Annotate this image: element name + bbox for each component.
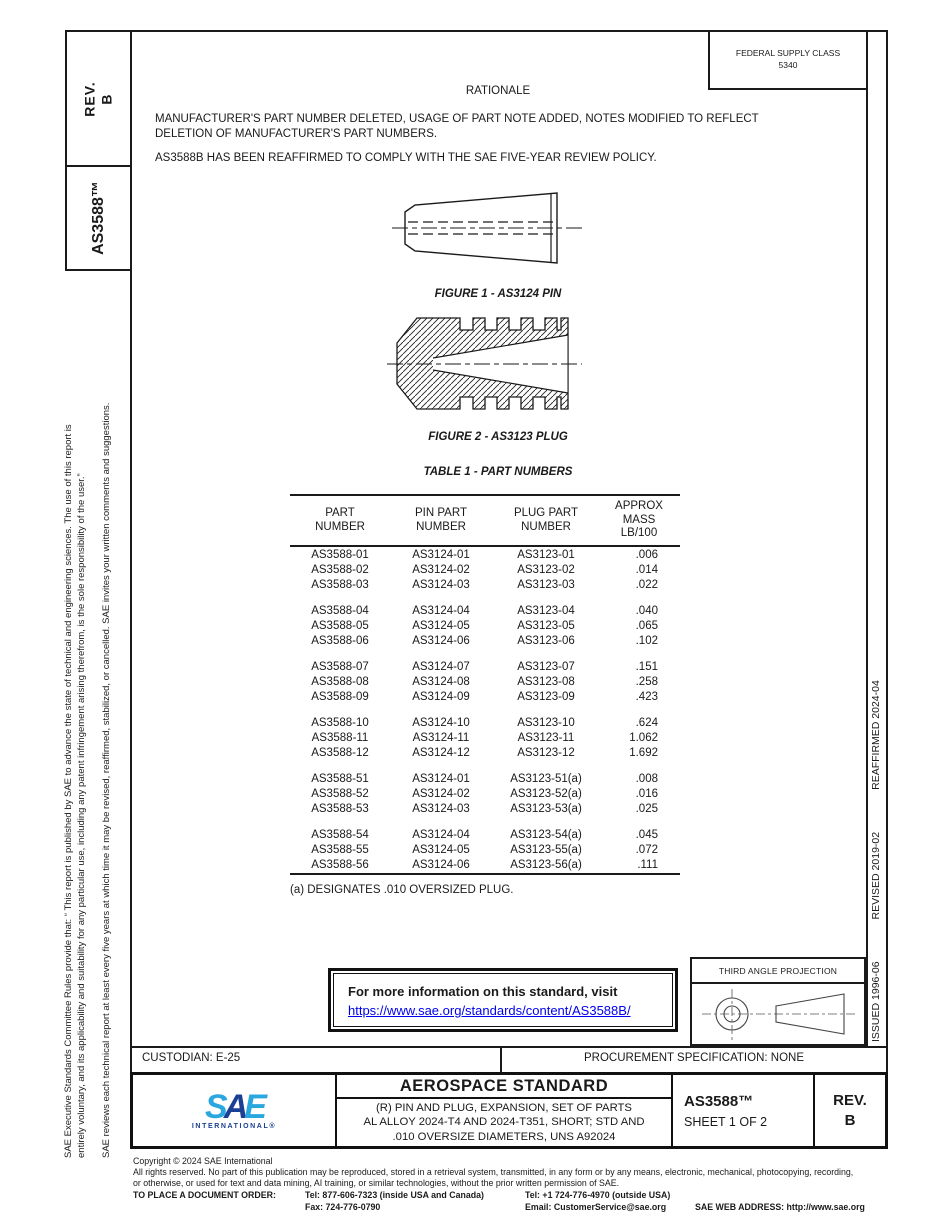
table-cell: .423 [600, 691, 678, 703]
table-cell: AS3588-54 [290, 829, 390, 841]
custodian-row-top-rule [130, 1046, 888, 1048]
column-header: PIN PART NUMBER [390, 507, 492, 534]
table-cell: AS3123-02 [492, 564, 600, 576]
reaffirmed-date: REAFFIRMED 2024-04 [870, 680, 882, 790]
table-group-gap [290, 705, 680, 716]
table-row: AS3588-11AS3124-11AS3123-111.062 [290, 730, 680, 745]
figure-1-caption: FIGURE 1 - AS3124 PIN [130, 288, 866, 300]
revised-date: REVISED 2019-02 [870, 832, 882, 920]
table-row: AS3588-03AS3124-03AS3123-03.022 [290, 577, 680, 592]
table-cell: AS3588-03 [290, 579, 390, 591]
table-group-gap [290, 593, 680, 604]
table-cell: AS3124-03 [390, 579, 492, 591]
sae-logo-e: E [244, 1088, 263, 1126]
table-group-gap [290, 649, 680, 660]
table-cell: AS3588-51 [290, 773, 390, 785]
table-cell: AS3124-12 [390, 747, 492, 759]
sae-logo-subtext: INTERNATIONAL® [192, 1123, 276, 1130]
doc-number-cell: AS3588™ SHEET 1 OF 2 [671, 1075, 813, 1146]
more-info-text: For more information on this standard, v… [348, 982, 672, 1001]
table-cell: AS3588-10 [290, 717, 390, 729]
column-header: APPROX MASS LB/100 [600, 500, 678, 541]
table-body: AS3588-01AS3124-01AS3123-01.006AS3588-02… [290, 547, 680, 873]
document-page: FEDERAL SUPPLY CLASS 5340 REV. B AS3588™… [0, 0, 950, 1230]
sheet-number: SHEET 1 OF 2 [684, 1115, 813, 1129]
order-label: TO PLACE A DOCUMENT ORDER: [133, 1190, 276, 1201]
rationale-paragraph-1: MANUFACTURER'S PART NUMBER DELETED, USAG… [155, 112, 845, 142]
standard-title-lines: (R) PIN AND PLUG, EXPANSION, SET OF PART… [337, 1099, 671, 1146]
table-cell: .022 [600, 579, 678, 591]
rev-value: REV. B [833, 1091, 867, 1131]
table-cell: .111 [600, 859, 678, 871]
table-cell: AS3123-54(a) [492, 829, 600, 841]
fax-number: Fax: 724-776-0790 [305, 1202, 380, 1213]
document-type-heading: AEROSPACE STANDARD [337, 1075, 671, 1099]
table-cell: .258 [600, 676, 678, 688]
table-cell: .008 [600, 773, 678, 785]
table-cell: AS3588-09 [290, 691, 390, 703]
table-group-gap [290, 817, 680, 828]
table-cell: AS3124-10 [390, 717, 492, 729]
table-row: AS3588-55AS3124-05AS3123-55(a).072 [290, 843, 680, 858]
table-cell: AS3123-56(a) [492, 859, 600, 871]
column-header: PART NUMBER [290, 507, 390, 534]
table-cell: .040 [600, 605, 678, 617]
figure-1-pin-drawing [390, 186, 585, 276]
table-cell: AS3123-03 [492, 579, 600, 591]
table-cell: .016 [600, 788, 678, 800]
web-address: SAE WEB ADDRESS: http://www.sae.org [695, 1202, 865, 1213]
table-cell: AS3588-11 [290, 732, 390, 744]
table-cell: AS3123-07 [492, 661, 600, 673]
table-cell: AS3123-05 [492, 620, 600, 632]
table-cell: AS3124-01 [390, 549, 492, 561]
sae-committee-disclaimer: SAE Executive Standards Committee Rules … [62, 268, 88, 1158]
copyright-line: Copyright © 2024 SAE International [133, 1156, 273, 1167]
table-cell: 1.692 [600, 747, 678, 759]
table-row: AS3588-52AS3124-02AS3123-52(a).016 [290, 786, 680, 801]
table-cell: AS3124-05 [390, 620, 492, 632]
federal-supply-class-text: FEDERAL SUPPLY CLASS 5340 [736, 47, 840, 71]
federal-supply-class-box: FEDERAL SUPPLY CLASS 5340 [708, 30, 866, 90]
table-cell: AS3123-52(a) [492, 788, 600, 800]
table-cell: AS3124-06 [390, 859, 492, 871]
table-cell: AS3123-12 [492, 747, 600, 759]
table-cell: AS3124-05 [390, 844, 492, 856]
table-cell: AS3124-04 [390, 829, 492, 841]
table-cell: AS3588-05 [290, 620, 390, 632]
more-info-box-inner: For more information on this standard, v… [333, 973, 673, 1027]
table-cell: AS3123-09 [492, 691, 600, 703]
table-cell: AS3124-04 [390, 605, 492, 617]
table-cell: AS3123-04 [492, 605, 600, 617]
rights-line-1: All rights reserved. No part of this pub… [133, 1167, 938, 1178]
table-cell: .006 [600, 549, 678, 561]
figure-2-caption: FIGURE 2 - AS3123 PLUG [130, 431, 866, 443]
table-cell: AS3124-02 [390, 788, 492, 800]
standard-title-line: AL ALLOY 2024-T4 AND 2024-T351, SHORT; S… [363, 1115, 644, 1130]
table-cell: AS3123-55(a) [492, 844, 600, 856]
table-title: TABLE 1 - PART NUMBERS [130, 466, 866, 478]
table-cell: AS3124-11 [390, 732, 492, 744]
table-cell: AS3124-06 [390, 635, 492, 647]
table-row: AS3588-08AS3124-08AS3123-08.258 [290, 674, 680, 689]
table-cell: 1.062 [600, 732, 678, 744]
order-contact-line-1: TO PLACE A DOCUMENT ORDER: Tel: 877-606-… [133, 1190, 938, 1201]
table-row: AS3588-53AS3124-03AS3123-53(a).025 [290, 802, 680, 817]
table-cell: AS3588-06 [290, 635, 390, 647]
table-cell: .624 [600, 717, 678, 729]
table-cell: AS3123-01 [492, 549, 600, 561]
sae-logo-a: A [224, 1088, 245, 1126]
title-block: SAE INTERNATIONAL® AEROSPACE STANDARD (R… [130, 1072, 888, 1149]
table-cell: AS3588-07 [290, 661, 390, 673]
tel-outside: Tel: +1 724-776-4970 (outside USA) [525, 1190, 670, 1201]
table-row: AS3588-01AS3124-01AS3123-01.006 [290, 547, 680, 562]
table-cell: AS3588-53 [290, 803, 390, 815]
table-cell: .014 [600, 564, 678, 576]
table-cell: .025 [600, 803, 678, 815]
sae-logo-letters: SAE [205, 1092, 263, 1122]
table-row: AS3588-09AS3124-09AS3123-09.423 [290, 690, 680, 705]
table-cell: AS3123-51(a) [492, 773, 600, 785]
table-cell: AS3124-01 [390, 773, 492, 785]
standard-title-cell: AEROSPACE STANDARD (R) PIN AND PLUG, EXP… [335, 1075, 671, 1146]
table-cell: .072 [600, 844, 678, 856]
table-header-row: PART NUMBER PIN PART NUMBER PLUG PART NU… [290, 496, 680, 545]
table-row: AS3588-05AS3124-05AS3123-05.065 [290, 618, 680, 633]
figure-2-plug-drawing [385, 312, 585, 415]
table-cell: AS3588-01 [290, 549, 390, 561]
third-angle-projection-label: THIRD ANGLE PROJECTION [692, 959, 864, 984]
rev-tab-text: REV. B [81, 81, 115, 116]
table-cell: AS3123-06 [492, 635, 600, 647]
rev-tab-box: REV. B [65, 30, 132, 167]
rev-cell: REV. B [813, 1075, 885, 1146]
more-info-box: For more information on this standard, v… [328, 968, 678, 1032]
table-cell: .102 [600, 635, 678, 647]
table-cell: AS3124-03 [390, 803, 492, 815]
table-cell: .045 [600, 829, 678, 841]
standard-title-line: (R) PIN AND PLUG, EXPANSION, SET OF PART… [376, 1101, 632, 1116]
table-row: AS3588-02AS3124-02AS3123-02.014 [290, 562, 680, 577]
issued-date: ISSUED 1996-06 [870, 961, 882, 1042]
table-row: AS3588-54AS3124-04AS3123-54(a).045 [290, 827, 680, 842]
part-numbers-table: PART NUMBER PIN PART NUMBER PLUG PART NU… [290, 494, 680, 875]
table-cell: AS3588-12 [290, 747, 390, 759]
table-cell: AS3588-02 [290, 564, 390, 576]
sae-logo-s: S [205, 1088, 224, 1126]
table-row: AS3588-56AS3124-06AS3123-56(a).111 [290, 858, 680, 873]
table-cell: AS3123-53(a) [492, 803, 600, 815]
email-address: Email: CustomerService@sae.org [525, 1202, 666, 1213]
tel-inside: Tel: 877-606-7323 (inside USA and Canada… [305, 1190, 484, 1201]
doc-number-tab-text: AS3588™ [90, 181, 108, 255]
table-bottom-rule [290, 873, 680, 875]
revision-history-strip: ISSUED 1996-06REVISED 2019-02REAFFIRMED … [870, 572, 882, 1042]
table-cell: AS3124-07 [390, 661, 492, 673]
table-cell: AS3124-08 [390, 676, 492, 688]
rationale-heading: RATIONALE [130, 85, 866, 97]
table-row: AS3588-12AS3124-12AS3123-121.692 [290, 746, 680, 761]
table-cell: .151 [600, 661, 678, 673]
third-angle-projection-box: THIRD ANGLE PROJECTION [690, 957, 866, 1046]
table-cell: AS3124-09 [390, 691, 492, 703]
sae-logo: SAE INTERNATIONAL® [133, 1075, 335, 1146]
doc-number: AS3588™ [684, 1093, 813, 1110]
rationale-paragraph-2: AS3588B HAS BEEN REAFFIRMED TO COMPLY WI… [155, 151, 845, 166]
third-angle-projection-symbol [692, 984, 864, 1044]
sae-review-disclaimer: SAE reviews each technical report at lea… [100, 268, 113, 1158]
standard-title-line: .010 OVERSIZE DIAMETERS, UNS A92024 [393, 1130, 616, 1145]
table-cell: AS3588-52 [290, 788, 390, 800]
rights-line-2: or otherwise, or used for text and data … [133, 1178, 938, 1189]
table-cell: AS3588-56 [290, 859, 390, 871]
table-cell: AS3123-08 [492, 676, 600, 688]
order-contact-line-2: Fax: 724-776-0790 Email: CustomerService… [133, 1202, 938, 1213]
table-cell: .065 [600, 620, 678, 632]
table-row: AS3588-10AS3124-10AS3123-10.624 [290, 715, 680, 730]
column-header: PLUG PART NUMBER [492, 507, 600, 534]
doc-number-tab-box: AS3588™ [65, 165, 132, 271]
table-group-gap [290, 761, 680, 772]
table-row: AS3588-06AS3124-06AS3123-06.102 [290, 633, 680, 648]
procurement-spec-text: PROCUREMENT SPECIFICATION: NONE [500, 1052, 888, 1064]
table-cell: AS3124-02 [390, 564, 492, 576]
table-footnote: (a) DESIGNATES .010 OVERSIZED PLUG. [290, 884, 513, 896]
standard-url-link[interactable]: https://www.sae.org/standards/content/AS… [348, 1003, 631, 1018]
table-row: AS3588-04AS3124-04AS3123-04.040 [290, 603, 680, 618]
table-cell: AS3588-55 [290, 844, 390, 856]
table-cell: AS3588-04 [290, 605, 390, 617]
table-cell: AS3123-11 [492, 732, 600, 744]
table-cell: AS3588-08 [290, 676, 390, 688]
custodian-text: CUSTODIAN: E-25 [142, 1052, 240, 1064]
table-cell: AS3123-10 [492, 717, 600, 729]
table-row: AS3588-51AS3124-01AS3123-51(a).008 [290, 771, 680, 786]
table-row: AS3588-07AS3124-07AS3123-07.151 [290, 659, 680, 674]
right-strip-divider [866, 30, 868, 1046]
